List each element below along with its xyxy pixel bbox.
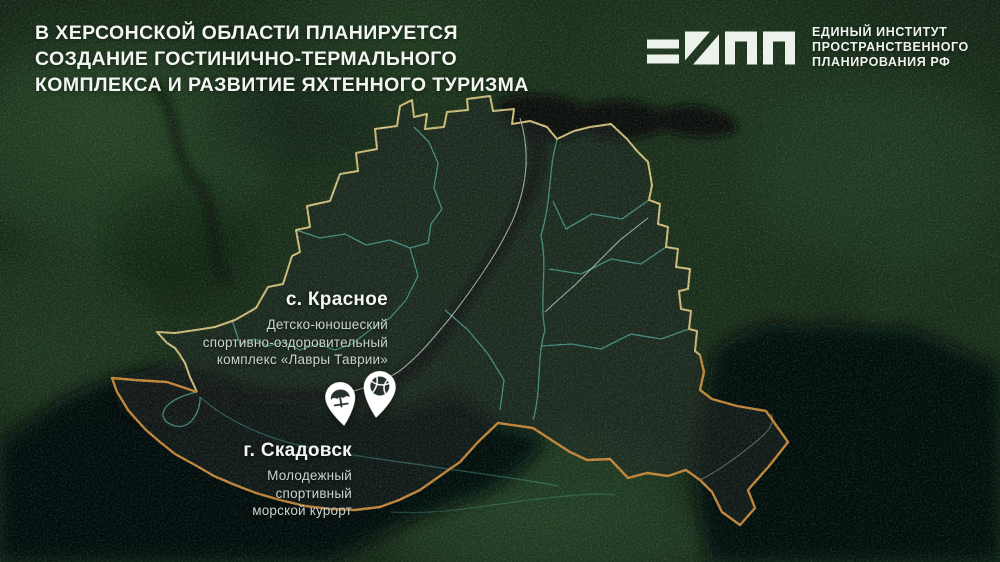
infographic-slide: В ХЕРСОНСКОЙ ОБЛАСТИ ПЛАНИРУЕТСЯ СОЗДАНИ… bbox=[0, 0, 1000, 562]
label-krasnoe: с. Красное Детско-юношеский спортивно-оз… bbox=[203, 289, 388, 369]
settlement-description: Детско-юношеский спортивно-оздоровительн… bbox=[203, 316, 388, 369]
institute-name-line-2: ПРОСТРАНСТВЕННОГО bbox=[812, 40, 972, 55]
settlement-name: с. Красное bbox=[203, 289, 388, 311]
institute-name: ЕДИНЫЙ ИНСТИТУТ ПРОСТРАНСТВЕННОГО ПЛАНИР… bbox=[812, 25, 972, 70]
institute-logo: ЕДИНЫЙ ИНСТИТУТ ПРОСТРАНСТВЕННОГО ПЛАНИР… bbox=[647, 25, 972, 70]
page-title: В ХЕРСОНСКОЙ ОБЛАСТИ ПЛАНИРУЕТСЯ СОЗДАНИ… bbox=[35, 20, 529, 98]
eipp-logo-icon bbox=[647, 31, 797, 65]
title-line-2: СОЗДАНИЕ ГОСТИНИЧНО-ТЕРМАЛЬНОГО bbox=[35, 46, 529, 72]
settlement-description: Молодежный спортивный морской курорт bbox=[243, 467, 352, 520]
label-skadovsk: г. Скадовск Молодежный спортивный морско… bbox=[243, 440, 352, 520]
title-line-3: КОМПЛЕКСА И РАЗВИТИЕ ЯХТЕННОГО ТУРИЗМА bbox=[35, 72, 529, 98]
institute-name-line-1: ЕДИНЫЙ ИНСТИТУТ bbox=[812, 25, 972, 40]
map-pin-beach-umbrella bbox=[318, 375, 365, 430]
title-line-1: В ХЕРСОНСКОЙ ОБЛАСТИ ПЛАНИРУЕТСЯ bbox=[35, 20, 529, 46]
institute-name-line-3: ПЛАНИРОВАНИЯ РФ bbox=[812, 55, 972, 70]
settlement-name: г. Скадовск bbox=[243, 440, 352, 462]
